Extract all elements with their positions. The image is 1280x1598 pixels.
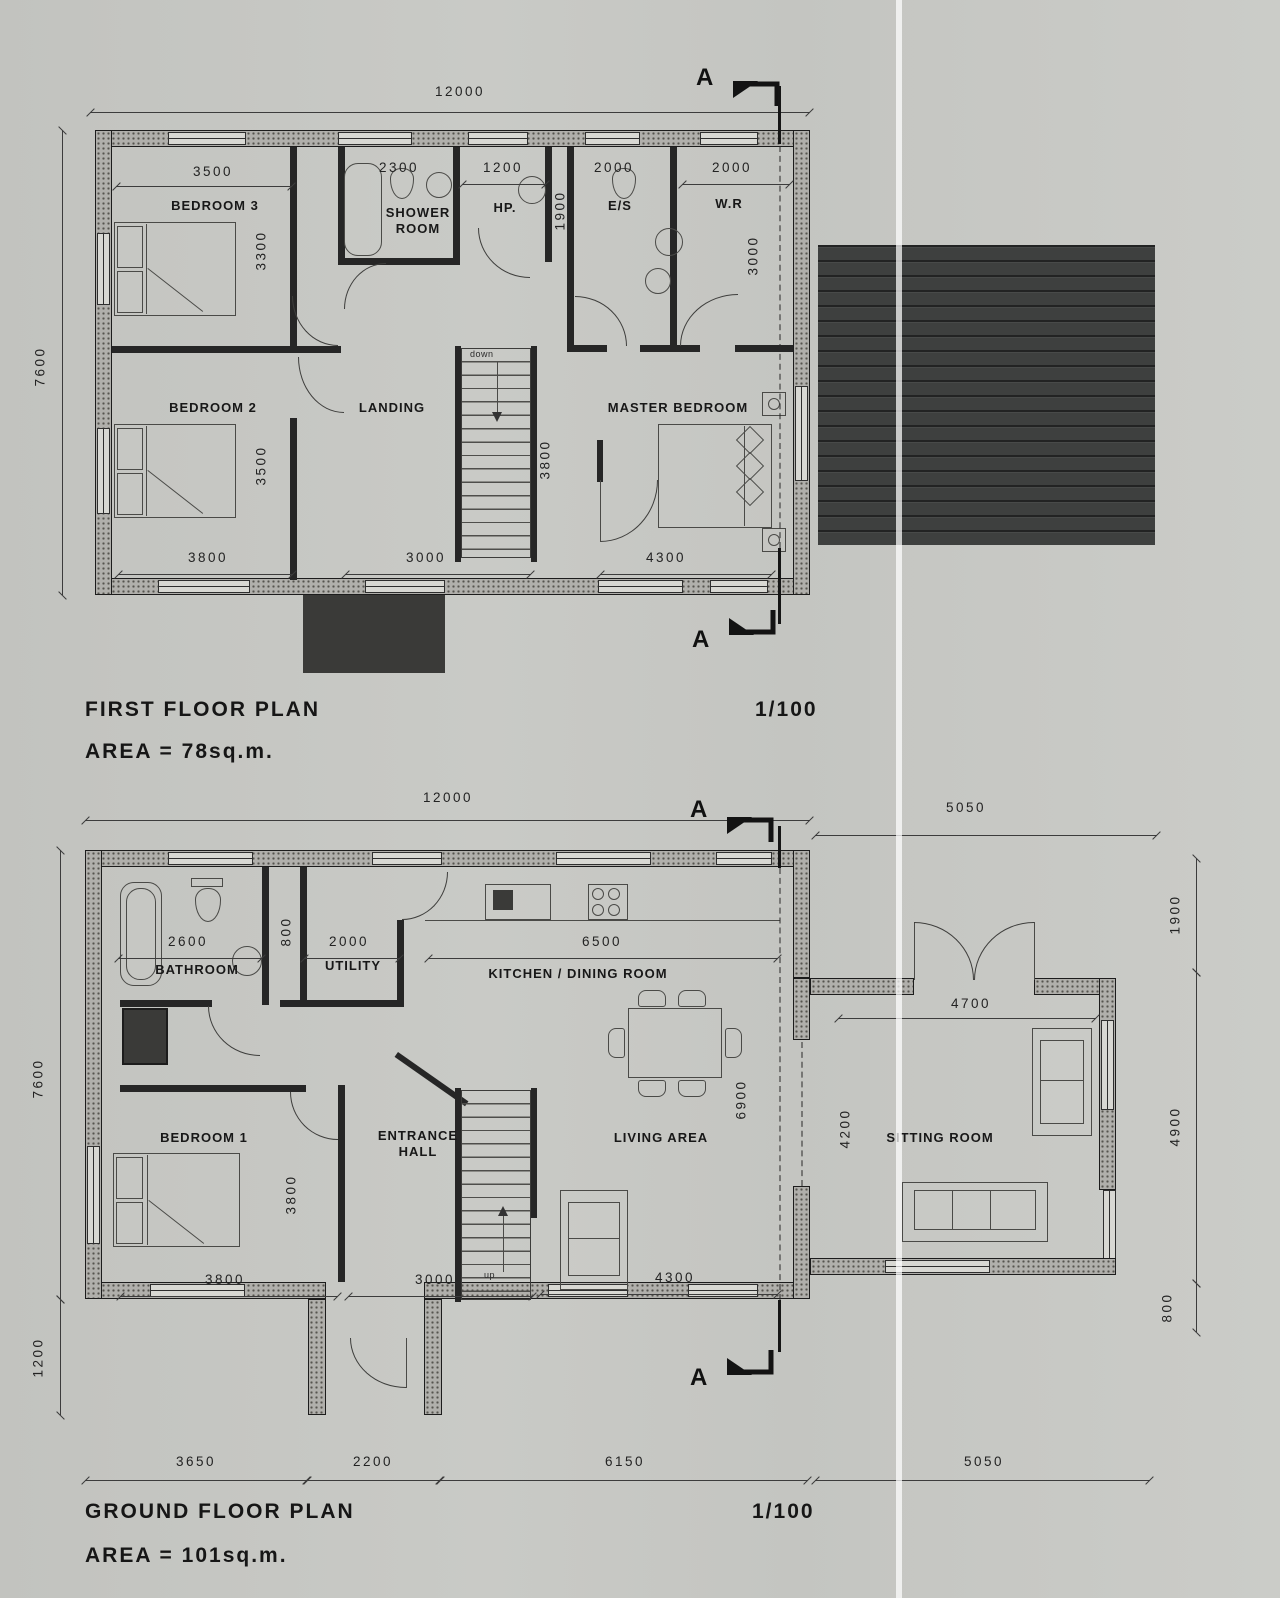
dim-bottom-seg3: 6150 [592, 1454, 658, 1469]
section-letter: A [696, 64, 713, 92]
section-flag-icon [730, 78, 782, 106]
section-line-dashed [779, 146, 781, 548]
interior-wall [567, 345, 607, 352]
door-leaf [406, 1338, 407, 1388]
dim-line [90, 112, 810, 113]
window [556, 852, 651, 865]
stair-arrow-line [503, 1214, 504, 1272]
room-label-kitchen-dining: KITCHEN / DINING ROOM [478, 966, 678, 981]
shower-enclosure [122, 1008, 168, 1065]
dim-walk-in-robe-depth: 3000 [742, 228, 764, 282]
ground-floor-area: AREA = 101sq.m. [85, 1544, 288, 1568]
dim-sitting-width: 4700 [938, 996, 1004, 1011]
dim-line [428, 958, 778, 959]
dim-line [62, 130, 63, 595]
pillow [117, 473, 143, 515]
dim-line [462, 184, 546, 185]
window [97, 428, 110, 514]
dim-line [815, 835, 1157, 836]
door-swing [680, 294, 738, 346]
interior-wall [290, 147, 297, 350]
dim-bedroom1-depth: 3800 [280, 1166, 302, 1222]
dim-line [60, 850, 61, 1299]
dim-line [1196, 858, 1197, 972]
pillow [116, 1157, 143, 1199]
dim-line [345, 574, 531, 575]
porch-roof-block [303, 595, 445, 673]
dining-chair [638, 990, 666, 1007]
door-swing [292, 296, 338, 346]
door-swing [290, 1092, 338, 1140]
window [468, 132, 528, 145]
dim-bedroom3-width: 3500 [168, 164, 258, 179]
first-floor-scale: 1/100 [755, 698, 818, 722]
window [168, 852, 253, 865]
staircase [461, 348, 531, 558]
dim-overall-width: 12000 [420, 84, 500, 99]
wash-basin [655, 228, 683, 256]
first-floor-area: AREA = 78sq.m. [85, 740, 274, 764]
stair-direction-label: down [470, 349, 494, 359]
window [338, 132, 412, 145]
dim-bedroom2-width: 3800 [172, 550, 244, 565]
exterior-wall-left [95, 130, 112, 595]
window [87, 1146, 100, 1244]
window [598, 580, 683, 593]
window [688, 1284, 758, 1297]
section-letter: A [692, 626, 709, 654]
dim-walk-in-robe-width: 2000 [700, 160, 764, 175]
door-swing [600, 480, 658, 542]
dim-bottom-seg4: 5050 [950, 1454, 1018, 1469]
dim-opening-width: 4200 [834, 1100, 856, 1156]
interior-wall [262, 867, 269, 1005]
room-label-bathroom: BATHROOM [152, 962, 242, 977]
stair-arrow-line [497, 362, 498, 414]
porch-wall [308, 1299, 326, 1415]
ground-floor-scale: 1/100 [752, 1500, 815, 1524]
stove-burner [592, 888, 604, 900]
dim-line [118, 958, 262, 959]
interior-wall [597, 440, 603, 482]
dim-bedroom3-depth: 3300 [250, 224, 272, 276]
sofa-line [952, 1190, 953, 1230]
door-swing [208, 1006, 260, 1056]
window [97, 233, 110, 305]
stove-burner [608, 904, 620, 916]
interior-wall [640, 345, 700, 352]
dim-hall-width: 3000 [404, 1272, 466, 1287]
dim-living-width: 4300 [642, 1270, 708, 1285]
stove-burner [608, 888, 620, 900]
interior-wall [338, 1085, 345, 1282]
room-label-entrance-hall: ENTRANCE HALL [372, 1128, 464, 1161]
room-label-living-area: LIVING AREA [606, 1130, 716, 1145]
sofa-line [990, 1190, 991, 1230]
room-label-bedroom3: BEDROOM 3 [160, 198, 270, 213]
dim-line [60, 1299, 61, 1415]
section-line-dashed [779, 868, 781, 1300]
dining-chair [608, 1028, 625, 1058]
window [1103, 1190, 1116, 1260]
section-letter: A [690, 1364, 707, 1392]
room-label-hot-press: HP. [487, 200, 523, 215]
dim-ensuite-width: 2000 [582, 160, 646, 175]
dim-line [116, 186, 292, 187]
interior-wall [397, 920, 404, 1005]
window [168, 132, 246, 145]
toilet-cistern [191, 878, 223, 887]
dim-line [120, 1296, 338, 1297]
window [585, 132, 640, 145]
dim-right-top: 1900 [1164, 888, 1186, 940]
dim-living-depth: 6900 [730, 1070, 752, 1128]
ground-floor-title: GROUND FLOOR PLAN [85, 1500, 355, 1524]
dim-lobby-width: 800 [276, 910, 296, 952]
dim-line [85, 1480, 307, 1481]
first-floor-title: FIRST FLOOR PLAN [85, 698, 320, 722]
section-line [778, 86, 781, 144]
door-swing [402, 872, 448, 920]
dim-line [1196, 1283, 1197, 1332]
room-label-shower-room: SHOWER ROOM [380, 205, 456, 238]
door-swing [344, 263, 386, 309]
stair-arrow-down-icon [492, 412, 502, 422]
dining-chair [678, 990, 706, 1007]
window [372, 852, 442, 865]
window [158, 580, 250, 593]
room-label-walk-in-robe: W.R [706, 196, 752, 211]
bathtub [344, 163, 382, 256]
dim-kitchen-width: 6500 [568, 934, 636, 949]
dining-table [628, 1008, 722, 1078]
wash-basin [426, 172, 452, 198]
dim-line [540, 1294, 778, 1295]
dim-line [838, 1018, 1096, 1019]
scan-artifact-line [896, 0, 902, 1598]
dim-overall-depth: 7600 [26, 1050, 50, 1106]
exterior-wall-right [793, 1186, 810, 1299]
staircase [461, 1090, 531, 1300]
dim-stair-depth: 3800 [534, 432, 556, 486]
dim-shower-width: 2300 [364, 160, 434, 175]
floor-plan-sheet: down BEDROOM 3 SHOWER ROOM HP. E/S W.R B… [0, 0, 1280, 1598]
dim-hot-press-width: 1200 [472, 160, 534, 175]
sofa-cushions [1040, 1040, 1084, 1124]
exterior-wall-right [793, 850, 810, 978]
dim-line [682, 184, 790, 185]
pillow [117, 226, 143, 268]
window [710, 580, 768, 593]
interior-wall [120, 1085, 306, 1092]
door-leaf [1034, 922, 1035, 980]
dim-extension-width: 5050 [930, 800, 1002, 815]
dining-chair [678, 1080, 706, 1097]
door-leaf [600, 480, 601, 542]
dim-line [348, 1296, 533, 1297]
dim-line [1196, 972, 1197, 1283]
pillow [116, 1202, 143, 1244]
dim-line [118, 574, 293, 575]
room-label-bedroom1: BEDROOM 1 [152, 1130, 256, 1145]
dim-landing-width: 3000 [392, 550, 460, 565]
sofa-line [1040, 1080, 1084, 1081]
dim-bedroom2-depth: 3500 [250, 438, 272, 492]
door-swing [298, 357, 344, 413]
dim-porch-depth: 1200 [26, 1332, 50, 1382]
stair-wall [531, 1088, 537, 1218]
toilet [195, 888, 221, 922]
pillow [117, 271, 143, 313]
door-swing [478, 228, 530, 278]
section-letter: A [690, 796, 707, 824]
interior-wall [567, 147, 574, 348]
section-flag-icon [724, 814, 776, 842]
dim-bottom-seg2: 2200 [340, 1454, 406, 1469]
dim-bathroom-width: 2600 [156, 934, 220, 949]
section-line [778, 826, 781, 868]
dim-overall-width: 12000 [408, 790, 488, 805]
door-swing [350, 1338, 406, 1388]
section-line [778, 548, 781, 624]
stair-arrow-up-icon [498, 1206, 508, 1216]
dim-bedroom1-width: 3800 [192, 1272, 258, 1287]
french-door-swing [914, 922, 974, 980]
dim-overall-depth: 7600 [28, 338, 52, 394]
dim-line [440, 1480, 808, 1481]
window [700, 132, 758, 145]
dim-line [815, 1480, 1150, 1481]
section-flag-icon [724, 1350, 776, 1378]
interior-wall [300, 867, 307, 1005]
french-door-swing [974, 922, 1034, 980]
dim-corridor-depth: 1900 [550, 186, 570, 234]
kitchen-counter-line [425, 920, 780, 921]
dim-line [600, 574, 772, 575]
interior-wall [297, 346, 341, 353]
dim-bottom-seg1: 3650 [162, 1454, 230, 1469]
window [1101, 1020, 1114, 1110]
room-label-bedroom2: BEDROOM 2 [158, 400, 268, 415]
sofa-cushions [568, 1202, 620, 1276]
dining-chair [638, 1080, 666, 1097]
sofa-cushions [914, 1190, 1036, 1230]
porch-wall [424, 1299, 442, 1415]
dim-utility-width: 2000 [318, 934, 380, 949]
dim-master-width: 4300 [630, 550, 702, 565]
sofa-line [568, 1238, 620, 1239]
dim-line [307, 1480, 440, 1481]
wash-basin [645, 268, 671, 294]
interior-wall [112, 346, 297, 353]
window [365, 580, 445, 593]
interior-wall [290, 418, 297, 580]
stove-burner [592, 904, 604, 916]
room-label-landing: LANDING [352, 400, 432, 415]
pillow [117, 428, 143, 470]
extension-roof-block [818, 245, 1155, 545]
interior-wall [120, 1000, 212, 1007]
interior-wall [735, 345, 793, 352]
dim-right-bottom: 800 [1156, 1286, 1178, 1328]
dim-line [304, 958, 400, 959]
interior-wall [280, 1000, 404, 1007]
section-flag-icon [726, 610, 778, 638]
sink-bowl [493, 890, 513, 910]
section-line [778, 1300, 781, 1352]
dim-right-middle: 4900 [1164, 1098, 1186, 1154]
opening-dashed-line [801, 1042, 803, 1186]
door-swing [575, 296, 627, 346]
room-label-master-bedroom: MASTER BEDROOM [598, 400, 758, 415]
room-label-utility: UTILITY [318, 958, 388, 973]
interior-wall [338, 258, 460, 265]
exterior-wall-right [793, 978, 810, 1040]
room-label-ensuite: E/S [600, 198, 640, 213]
window [795, 386, 808, 481]
exterior-wall-right [793, 130, 810, 595]
dining-chair [725, 1028, 742, 1058]
window [716, 852, 772, 865]
stair-direction-label: up [484, 1270, 495, 1280]
